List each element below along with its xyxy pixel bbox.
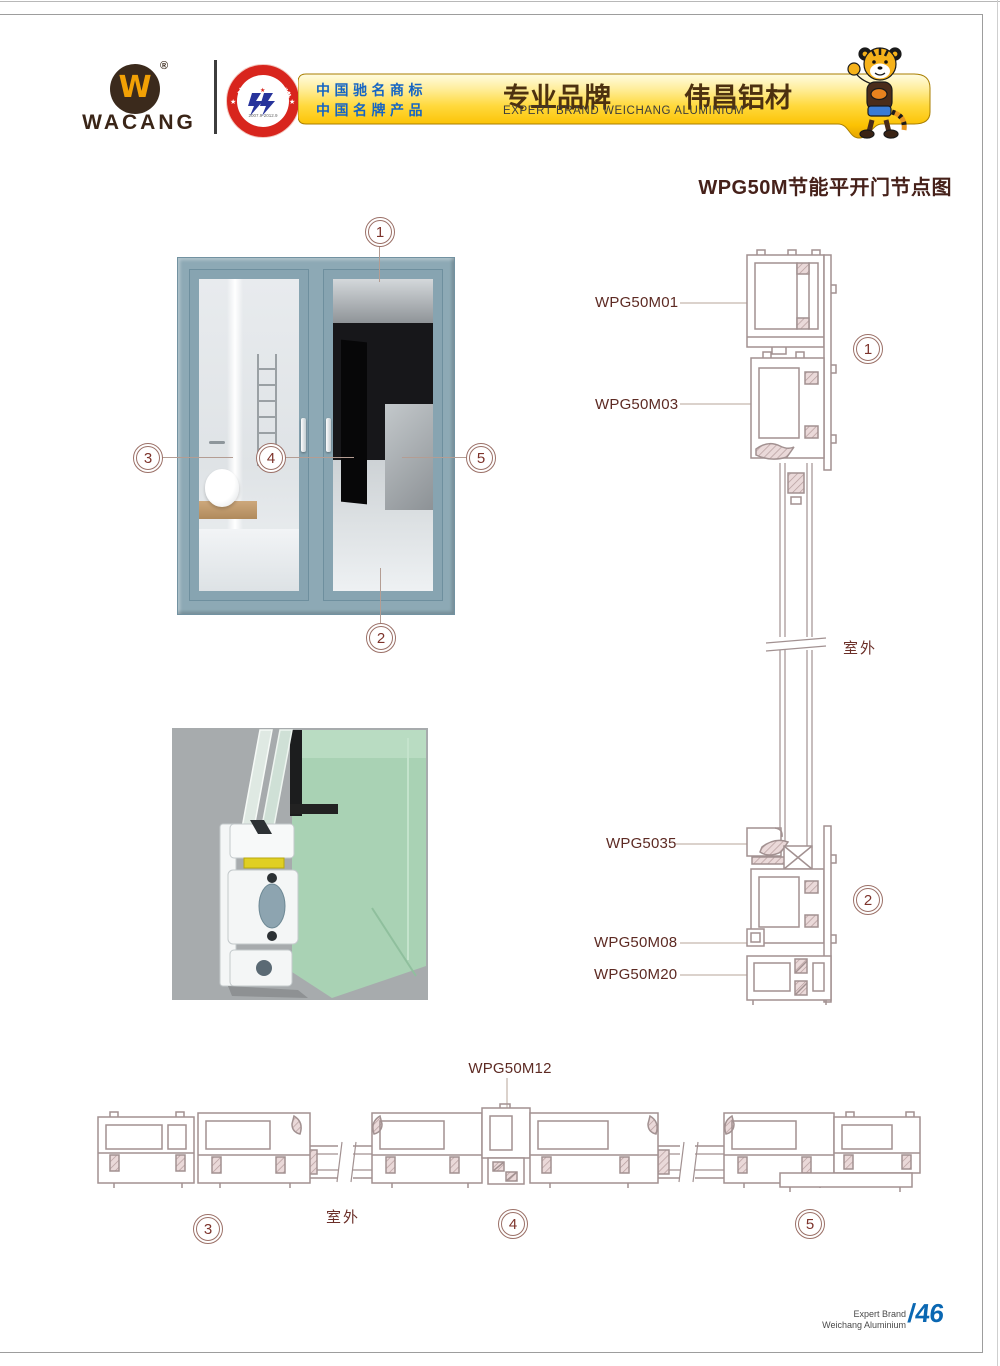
vertical-profiles [747, 250, 836, 1005]
profile-label-wpg50m08: WPG50M08 [594, 934, 677, 951]
profile-3d-drawing [172, 728, 428, 1000]
leader-line [380, 568, 381, 623]
catalog-page: W ® WACANG 中国名牌 CHINA TOP BRAND ★ ★ ★ 20… [0, 0, 1000, 1366]
callout-5: 5 [466, 443, 496, 473]
outdoor-label-vertical: 室外 [843, 637, 877, 658]
profile-3d-render [172, 728, 428, 1000]
footer-brand-text: Expert Brand Weichang Aluminium [760, 1309, 906, 1331]
badge-star-right: ★ [289, 98, 295, 106]
page-number: /46 [906, 1298, 945, 1329]
section-circle-4-number: 4 [501, 1212, 525, 1236]
dark-glazing-edge2 [290, 804, 338, 814]
profile-label-wpg50m03: WPG50M03 [595, 396, 678, 413]
horizontal-profiles [98, 1104, 920, 1192]
dark-room-scene [333, 279, 433, 591]
claim-line-1: 中国驰名商标 [316, 80, 427, 100]
door-handle-left [301, 418, 306, 452]
callout-2-number: 2 [369, 626, 393, 650]
section-circle-4: 4 [498, 1209, 528, 1239]
outdoor-label-horizontal: 室外 [326, 1206, 360, 1227]
callout-5-number: 5 [469, 446, 493, 470]
wacang-logo-icon: W [110, 64, 160, 114]
badge-star-center: ★ [260, 87, 265, 94]
tiger-mascot-icon [842, 42, 916, 140]
callout-4: 4 [256, 443, 286, 473]
green-panel-top [292, 730, 426, 758]
banner-en: EXPERT BRAND WEICHANG ALUMINIUM [503, 105, 744, 117]
door-left-sash [190, 270, 308, 600]
badge-star-left: ★ [230, 98, 236, 106]
callout-4-number: 4 [259, 446, 283, 470]
header-divider [214, 60, 217, 134]
footer-line-1: Expert Brand [760, 1309, 906, 1320]
door-handle-right [326, 418, 331, 452]
dark-doorway [341, 340, 367, 505]
green-panel [292, 730, 426, 998]
profile-label-wpg5035: WPG5035 [606, 835, 677, 852]
china-top-brand-badge-icon: 中国名牌 CHINA TOP BRAND ★ ★ ★ 2007.9-2012.9 [225, 62, 301, 140]
floor-reflection [199, 529, 299, 591]
leader-line [379, 246, 380, 282]
section-circle-1: 1 [853, 334, 883, 364]
callout-2: 2 [366, 623, 396, 653]
callout-3: 3 [133, 443, 163, 473]
claim-line-2: 中国名牌产品 [316, 100, 427, 120]
shadow [228, 986, 308, 998]
dark-glazing-edge [290, 730, 302, 816]
logo-w-glyph: W [118, 73, 151, 103]
footer-line-2: Weichang Aluminium [760, 1320, 906, 1331]
page-right-edge [997, 0, 998, 1366]
section-circle-5: 5 [795, 1209, 825, 1239]
leader-line [284, 457, 354, 458]
wall-faucet [209, 441, 225, 444]
section-circle-3-number: 3 [196, 1217, 220, 1241]
profile-label-wpg50m12: WPG50M12 [464, 1060, 556, 1077]
badge-dates: 2007.9-2012.9 [248, 113, 278, 118]
ceiling [333, 279, 433, 323]
section-circle-5-number: 5 [798, 1212, 822, 1236]
section-circle-1-number: 1 [856, 337, 880, 361]
door-elevation-photo [177, 257, 455, 615]
yellow-gasket [244, 858, 284, 868]
callout-1-number: 1 [368, 220, 392, 244]
roller-gasket [259, 884, 285, 928]
profile-label-wpg50m20: WPG50M20 [594, 966, 677, 983]
page-title: WPG50M节能平开门节点图 [600, 171, 952, 200]
door-right-sash [324, 270, 442, 600]
bathroom-scene [199, 279, 299, 591]
section-circle-3: 3 [193, 1214, 223, 1244]
callout-1: 1 [365, 217, 395, 247]
callout-3-number: 3 [136, 446, 160, 470]
profile-label-wpg50m01: WPG50M01 [595, 294, 678, 311]
section-circle-2-number: 2 [856, 888, 880, 912]
brand-name: WACANG [68, 111, 210, 135]
sink-bowl [205, 469, 239, 506]
section-circle-2: 2 [853, 885, 883, 915]
leader-line [161, 457, 233, 458]
vertical-section-drawing [580, 245, 980, 1015]
page-top-edge [0, 1, 1000, 2]
registered-mark: ® [160, 60, 168, 72]
leader-line [402, 457, 466, 458]
